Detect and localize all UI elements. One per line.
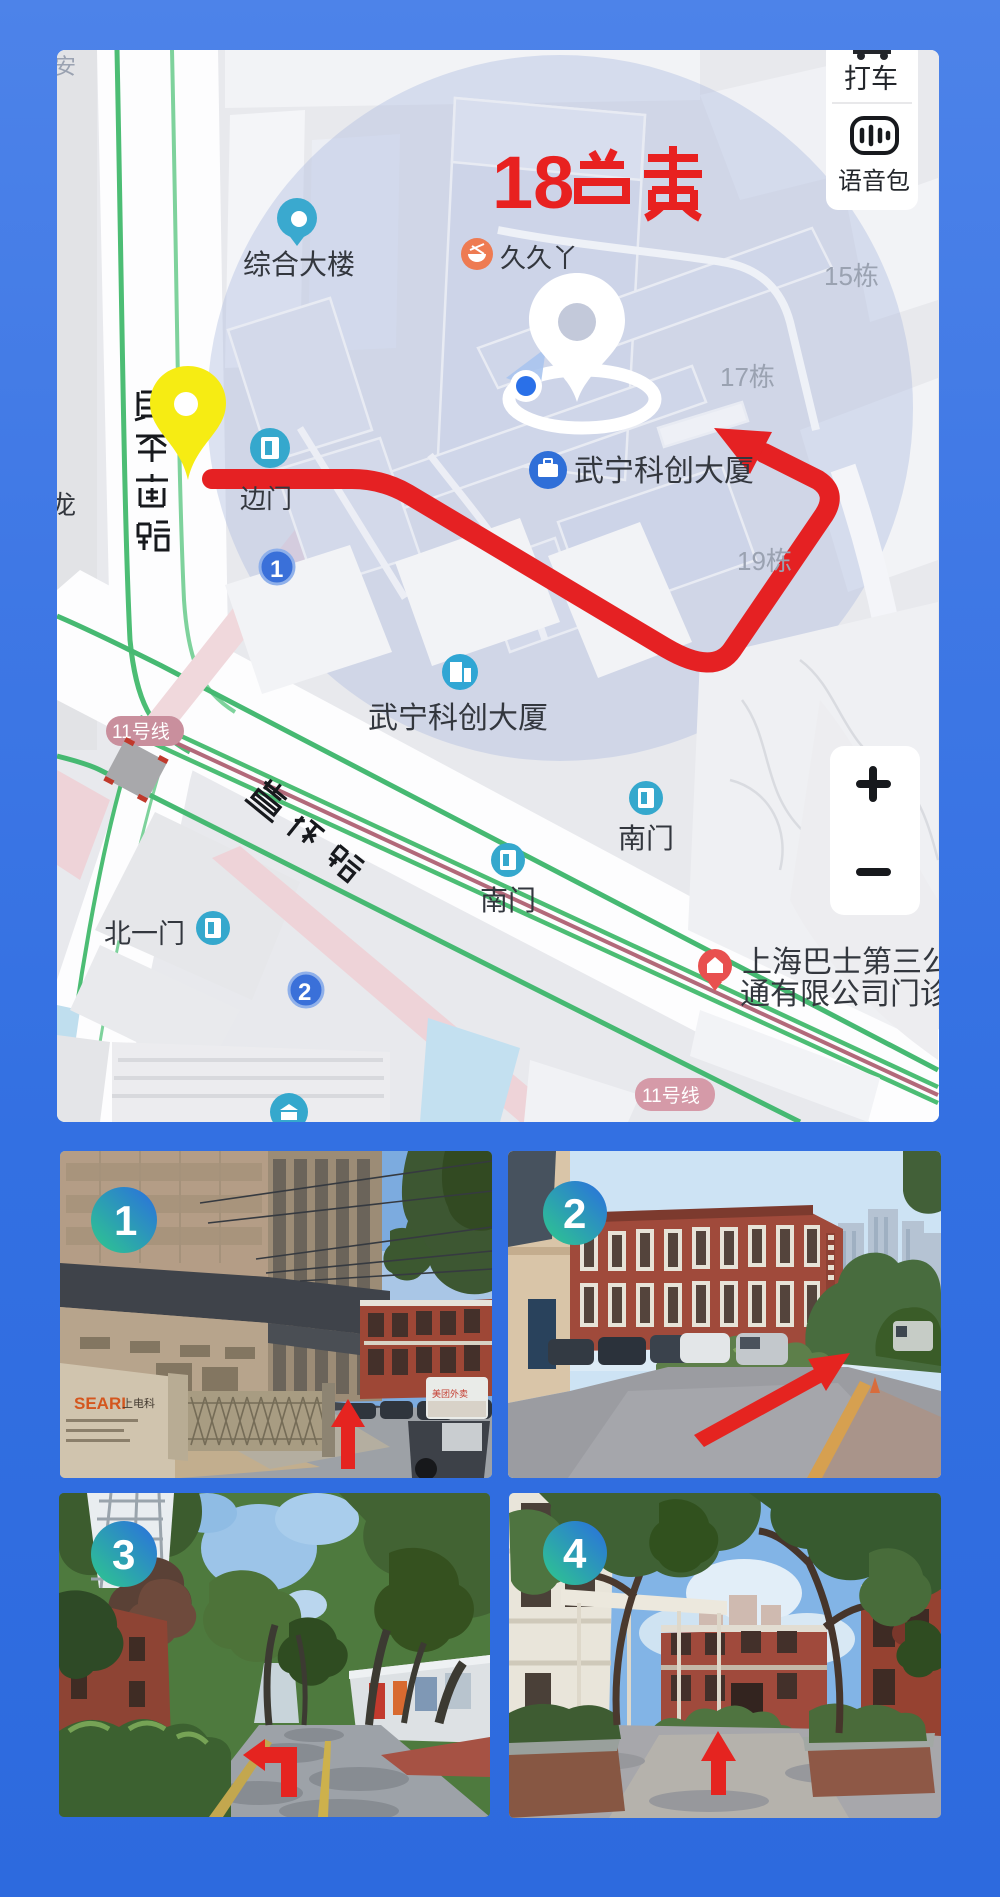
svg-text:1: 1: [270, 556, 283, 583]
svg-text:2: 2: [298, 979, 311, 1006]
svg-text:3: 3: [112, 1531, 135, 1578]
svg-text:15栋: 15栋: [824, 261, 879, 291]
svg-text:南门: 南门: [480, 885, 536, 916]
svg-text:上海巴士第三公: 上海巴士第三公: [742, 946, 939, 979]
svg-text:11号线: 11号线: [642, 1085, 700, 1107]
svg-text:美团外卖: 美团外卖: [432, 1388, 468, 1399]
svg-text:龙: 龙: [57, 490, 76, 520]
svg-text:久久丫: 久久丫: [500, 243, 578, 273]
svg-text:通有限公司门诊: 通有限公司门诊: [740, 978, 939, 1011]
svg-text:安: 安: [57, 54, 76, 79]
svg-text:18: 18: [492, 141, 574, 224]
svg-text:11号线: 11号线: [112, 721, 170, 743]
svg-text:19栋: 19栋: [737, 546, 792, 576]
svg-text:南门: 南门: [618, 823, 674, 854]
svg-text:上电科: 上电科: [122, 1396, 155, 1410]
svg-text:北一门: 北一门: [104, 919, 185, 949]
svg-text:武宁科创大厦: 武宁科创大厦: [368, 702, 548, 735]
svg-text:语音包: 语音包: [838, 168, 910, 195]
svg-text:2: 2: [563, 1190, 586, 1237]
svg-text:4: 4: [563, 1530, 587, 1577]
svg-text:打车: 打车: [844, 64, 898, 94]
svg-text:SEARI: SEARI: [74, 1394, 126, 1413]
svg-text:边门: 边门: [240, 484, 292, 514]
svg-text:武宁科创大厦: 武宁科创大厦: [574, 455, 754, 488]
svg-text:17栋: 17栋: [720, 362, 775, 392]
svg-text:1: 1: [114, 1197, 137, 1244]
svg-text:综合大楼: 综合大楼: [243, 249, 355, 280]
